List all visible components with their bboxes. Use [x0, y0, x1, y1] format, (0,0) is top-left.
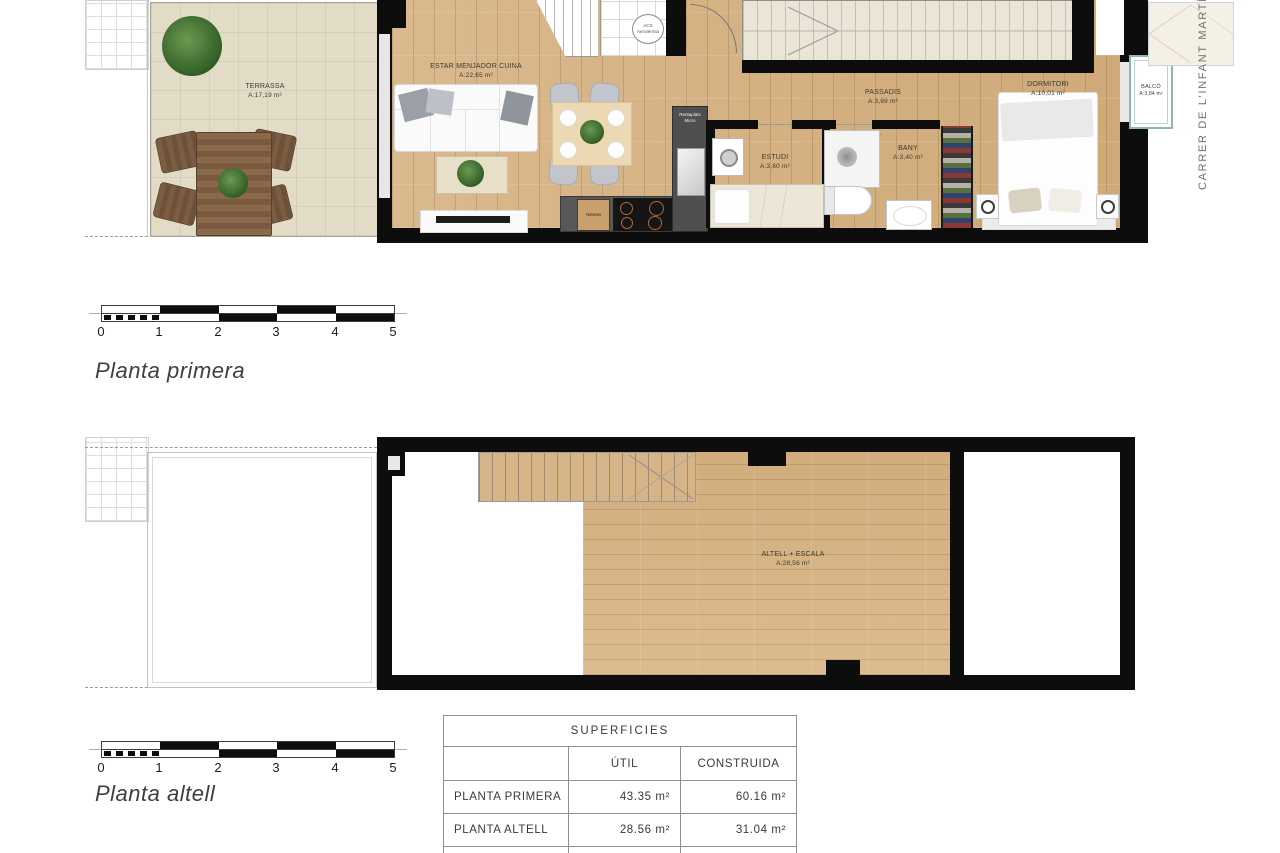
table-row-partial	[444, 846, 796, 853]
row-util: 43.35 m²	[569, 781, 681, 813]
table-row: PLANTA ALTELL 28.56 m² 31.04 m²	[444, 813, 796, 846]
floor-plan-sheet: TERRASSA A:17,19 m² ACS Aerotèrmia Never…	[0, 0, 1280, 853]
altell-stub-bottom	[826, 660, 860, 675]
wall-top-right	[1124, 0, 1148, 62]
scale-tick: 1	[155, 324, 162, 339]
row-name: PLANTA ALTELL	[444, 814, 569, 846]
roof-tiles-lower-left	[85, 437, 149, 522]
room-label-altell: ALTELL + ESCALA A:28,56 m²	[728, 550, 858, 568]
scale-tick: 4	[331, 324, 338, 339]
cooktop	[613, 198, 673, 231]
scale-tick: 3	[272, 760, 279, 775]
room-label-terrassa: TERRASSA A:17,19 m²	[215, 82, 315, 100]
sofa-cushion	[425, 88, 454, 115]
oven	[677, 148, 705, 196]
scale-tick: 2	[214, 760, 221, 775]
room-label-bany: BANY A:3,40 m²	[868, 144, 948, 162]
terrace-table-plant	[218, 168, 248, 198]
row-name: PLANTA PRIMERA	[444, 781, 569, 813]
acs-unit: ACS Aerotèrmia	[632, 14, 664, 44]
row-util: 28.56 m²	[569, 814, 681, 846]
terrace-outline-below	[147, 452, 377, 688]
communal-stair	[742, 0, 1074, 62]
wardrobe	[941, 126, 973, 228]
sliding-door-line	[836, 124, 872, 125]
scale-bar-bottom-row	[101, 749, 395, 758]
neighbour-terrace	[1148, 2, 1234, 66]
scale-tick: 4	[331, 760, 338, 775]
surfaces-table-title-row: SUPERFICIES	[444, 716, 796, 746]
room-label-passadis: PASSADIS A:3,69 m²	[838, 88, 928, 106]
header-util: ÚTIL	[569, 747, 681, 780]
wall-communal-right	[1072, 0, 1094, 73]
room-label-dormitori: DORMITORI A:10,01 m²	[998, 80, 1098, 98]
pillow	[1008, 187, 1042, 213]
altell-wall-right	[950, 452, 964, 675]
sofa-cushion	[500, 90, 534, 125]
header-empty-cell	[444, 747, 569, 780]
wall-stub	[390, 0, 406, 28]
street-name-label: CARRER DE L'INFANT MARTÍ	[1197, 30, 1209, 190]
scale-tick: 0	[97, 324, 104, 339]
wall-communal-bottom	[742, 60, 1094, 73]
sofa	[394, 84, 538, 152]
scale-tick: 1	[155, 760, 162, 775]
plan-title-altell: Planta altell	[95, 781, 215, 807]
altell-door-notch-inner	[388, 456, 400, 470]
plot-dash-line	[85, 447, 377, 448]
bathroom-sink	[886, 200, 932, 230]
scale-tick: 0	[97, 760, 104, 775]
double-bed	[998, 92, 1098, 226]
fridge: Nevera	[577, 199, 610, 231]
wall-closet-right	[666, 0, 686, 56]
altell-stair-treads	[478, 452, 696, 502]
tv	[436, 216, 510, 223]
row-construida: 31.04 m²	[681, 814, 796, 846]
wall-passadis-a	[706, 120, 758, 129]
wall-right-lower	[1124, 128, 1148, 243]
terrace-bush	[162, 16, 222, 76]
dining-table-plant	[580, 120, 604, 144]
coffee-table-plant	[457, 160, 484, 187]
altell-stub-top	[748, 452, 786, 466]
row-construida: 60.16 m²	[681, 781, 796, 813]
surfaces-table-title: SUPERFICIES	[444, 716, 796, 746]
roof-tiles-upper-left	[85, 0, 149, 70]
sliding-door-line	[758, 124, 792, 125]
pillow	[1048, 188, 1082, 214]
void-top-right	[1096, 0, 1126, 55]
estudi-bed	[710, 184, 824, 228]
surfaces-table-header-row: ÚTIL CONSTRUIDA	[444, 746, 796, 780]
table-row: PLANTA PRIMERA 43.35 m² 60.16 m²	[444, 780, 796, 813]
room-label-estar: ESTAR MENJADOR CUINA A:22,65 m²	[396, 62, 556, 80]
toilet	[824, 186, 872, 215]
terrace-glass-door	[379, 32, 390, 200]
room-label-estudi: ESTUDI A:3,60 m²	[733, 153, 817, 171]
terrace-boundary-line	[147, 0, 148, 237]
scale-tick: 5	[389, 760, 396, 775]
nightstand	[976, 194, 999, 219]
scale-tick: 2	[214, 324, 221, 339]
surfaces-table: SUPERFICIES ÚTIL CONSTRUIDA PLANTA PRIME…	[443, 715, 797, 853]
room-label-balco: BALCÓ A:3,84 m²	[1128, 84, 1174, 98]
plan-title-primera: Planta primera	[95, 358, 245, 384]
scale-tick: 3	[272, 324, 279, 339]
nightstand	[1096, 194, 1119, 219]
scale-tick: 5	[389, 324, 396, 339]
scale-bar-bottom-row	[101, 313, 395, 322]
stair-direction-chevron	[743, 1, 1073, 61]
header-construida: CONSTRUIDA	[681, 747, 796, 780]
altell-void-right	[964, 452, 1120, 675]
